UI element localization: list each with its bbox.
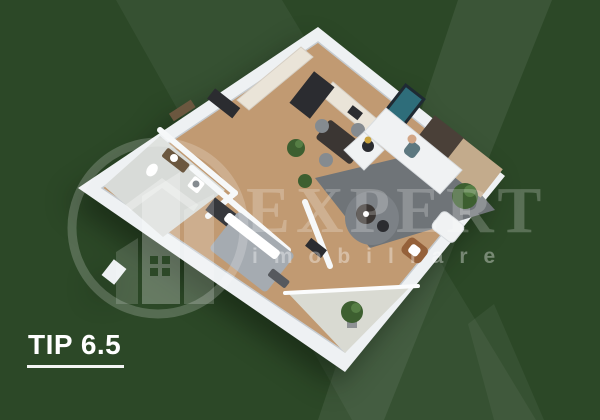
logo-window [150,268,158,276]
table-lamp [365,137,372,144]
logo-window [162,256,170,264]
logo-building-left [116,238,138,304]
logo-building-right [184,194,214,304]
balcony-plant-light [351,303,361,313]
logo-window [150,256,158,264]
listing-image: EXPERT imobiliare TIP 6.5 [0,0,600,420]
dining-chair [315,119,329,133]
watermark-brand-text: EXPERT [246,178,547,244]
dining-chair [319,153,333,167]
person-head [408,135,417,144]
balcony-plant [341,301,363,323]
plant-small-light [295,140,303,148]
bathroom-sink [170,154,178,162]
watermark-brand-subtext: imobiliare [252,246,511,267]
logo-window [162,268,170,276]
washing-machine-door [193,181,200,188]
apartment-type-label: TIP 6.5 [27,329,124,368]
